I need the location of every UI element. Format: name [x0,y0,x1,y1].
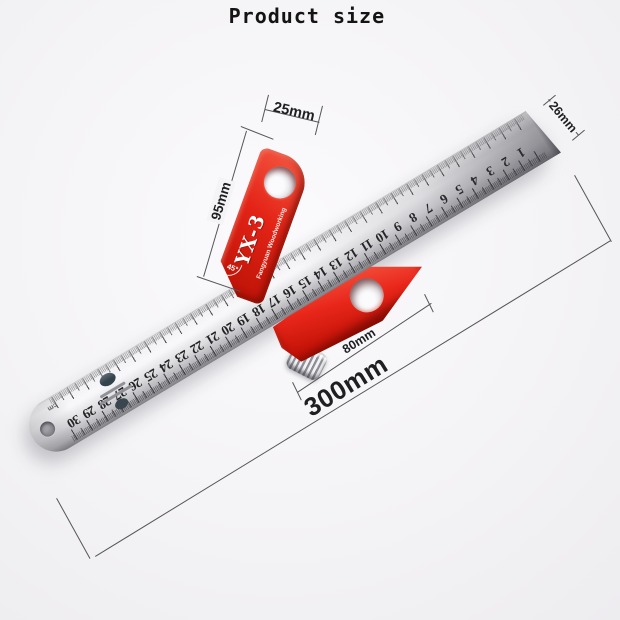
dim-25mm-tick-left [261,95,269,123]
dim-300mm-ext-left [56,498,91,559]
page-title: Product size [229,4,386,28]
dim-26mm-label: 26mm [545,97,582,137]
dim-25mm-label: 25mm [272,99,316,124]
product-size-figure: Product size 123456789101112131415161718… [0,0,620,620]
dim-300mm-ext-right [574,175,612,242]
dim-80mm-tick-right [424,294,434,313]
clamp-block-upper-hole [259,162,300,203]
dim-95mm-label: 95mm [206,177,235,225]
